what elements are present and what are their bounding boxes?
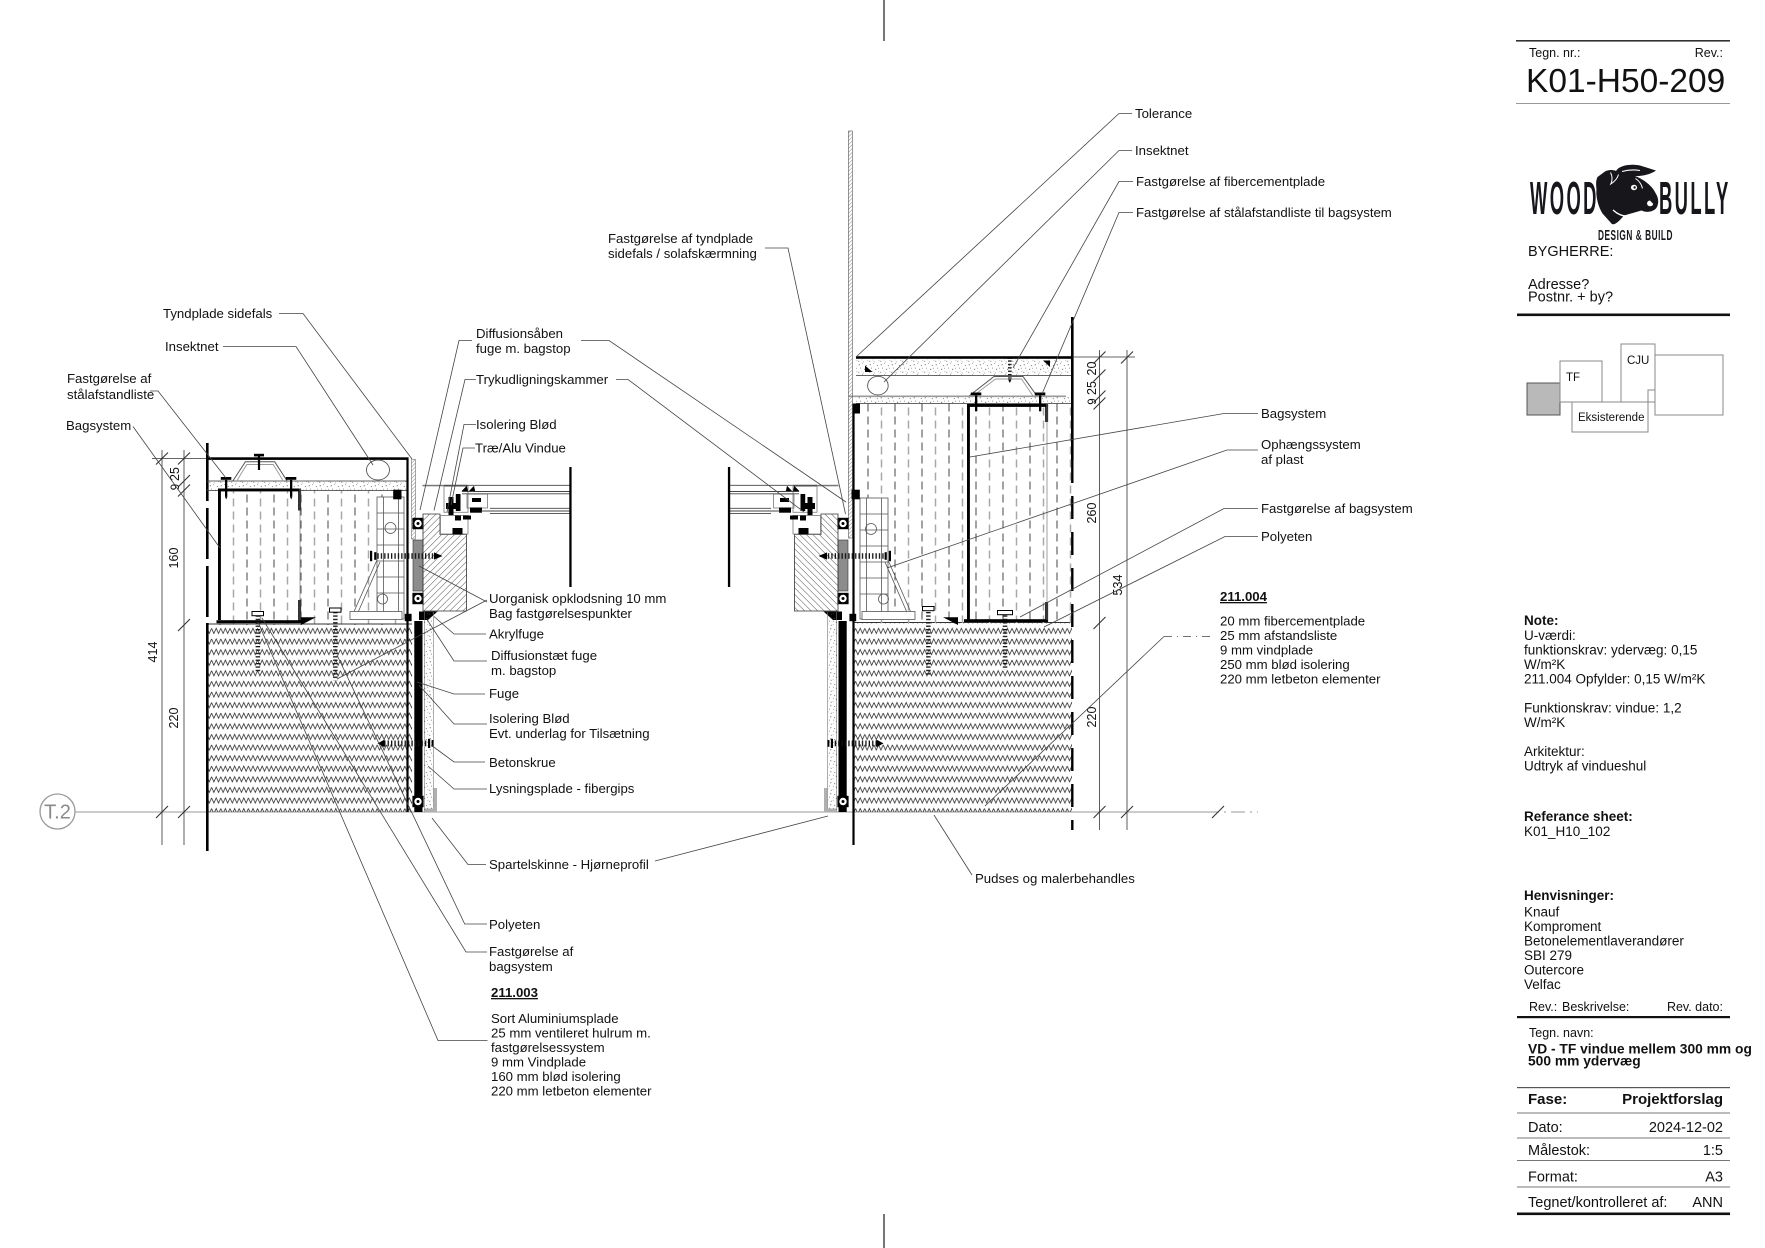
svg-text:Betonskrue: Betonskrue <box>489 755 556 770</box>
svg-text:Udtryk af vindueshul: Udtryk af vindueshul <box>1524 759 1646 774</box>
svg-text:Knauf: Knauf <box>1524 905 1560 920</box>
svg-text:160: 160 <box>167 548 181 569</box>
svg-text:25 mm afstandsliste: 25 mm afstandsliste <box>1220 628 1337 643</box>
svg-text:TF: TF <box>1566 372 1580 384</box>
svg-text:DESIGN & BUILD: DESIGN & BUILD <box>1598 226 1673 243</box>
svg-text:Komproment: Komproment <box>1524 919 1602 934</box>
svg-text:Fastgørelse af: Fastgørelse af <box>489 944 574 959</box>
svg-text:Lysningsplade - fibergips: Lysningsplade - fibergips <box>489 781 635 796</box>
svg-text:Tolerance: Tolerance <box>1135 106 1192 121</box>
svg-text:T.2: T.2 <box>44 802 71 824</box>
svg-text:160 mm blød isolering: 160 mm blød isolering <box>491 1069 621 1084</box>
svg-text:BULLY: BULLY <box>1659 173 1731 224</box>
svg-text:K01_H10_102: K01_H10_102 <box>1524 824 1610 839</box>
svg-text:BYGHERRE:: BYGHERRE: <box>1528 244 1613 260</box>
svg-text:Tegn. nr.:: Tegn. nr.: <box>1529 46 1580 60</box>
svg-text:Isolering Blød: Isolering Blød <box>489 711 570 726</box>
svg-text:CJU: CJU <box>1627 355 1649 367</box>
svg-text:Bag fastgørelsespunkter: Bag fastgørelsespunkter <box>489 606 633 621</box>
svg-text:25: 25 <box>1085 381 1099 395</box>
svg-text:Tyndplade sidefals: Tyndplade sidefals <box>163 306 273 321</box>
svg-text:Funktionskrav: vindue: 1,2: Funktionskrav: vindue: 1,2 <box>1524 701 1682 716</box>
svg-text:211.004 Opfylder: 0,15 W/m²K: 211.004 Opfylder: 0,15 W/m²K <box>1524 672 1705 687</box>
svg-text:Spartelskinne - Hjørneprofil: Spartelskinne - Hjørneprofil <box>489 857 649 872</box>
svg-text:Henvisninger:: Henvisninger: <box>1524 888 1614 903</box>
svg-text:Diffusionsåben: Diffusionsåben <box>476 326 563 341</box>
svg-text:Pudses og malerbehandles: Pudses og malerbehandles <box>975 871 1135 886</box>
svg-text:Rev. dato:: Rev. dato: <box>1667 1000 1723 1014</box>
svg-text:Fastgørelse af: Fastgørelse af <box>67 371 152 386</box>
svg-text:Isolering Blød: Isolering Blød <box>476 417 557 432</box>
svg-text:20: 20 <box>1085 362 1099 376</box>
svg-text:Projektforslag: Projektforslag <box>1622 1091 1723 1108</box>
svg-text:414: 414 <box>146 642 160 663</box>
svg-text:Eksisterende: Eksisterende <box>1578 412 1644 424</box>
svg-text:9: 9 <box>1087 398 1099 404</box>
svg-text:bagsystem: bagsystem <box>489 959 553 974</box>
svg-text:m. bagstop: m. bagstop <box>491 663 556 678</box>
svg-text:Trykudligningskammer: Trykudligningskammer <box>476 372 609 387</box>
svg-text:25 mm ventileret hulrum m.: 25 mm ventileret hulrum m. <box>491 1026 651 1041</box>
svg-text:K01-H50-209: K01-H50-209 <box>1526 63 1725 100</box>
svg-text:Evt. underlag for Tilsætning: Evt. underlag for Tilsætning <box>489 726 650 741</box>
svg-text:sidefals / solafskærmning: sidefals / solafskærmning <box>608 246 757 261</box>
svg-text:20 mm fibercementplade: 20 mm fibercementplade <box>1220 614 1365 629</box>
svg-text:WOOD: WOOD <box>1530 173 1599 224</box>
svg-text:Sort Aluminiumsplade: Sort Aluminiumsplade <box>491 1011 619 1026</box>
svg-text:W/m²K: W/m²K <box>1524 657 1565 672</box>
svg-text:Velfac: Velfac <box>1524 977 1561 992</box>
svg-text:220 mm letbeton elementer: 220 mm letbeton elementer <box>491 1084 652 1099</box>
svg-text:Tegnet/kontrolleret af:: Tegnet/kontrolleret af: <box>1528 1195 1667 1211</box>
svg-text:SBI 279: SBI 279 <box>1524 948 1572 963</box>
svg-text:ANN: ANN <box>1692 1195 1723 1211</box>
svg-text:211.003: 211.003 <box>491 985 538 1000</box>
svg-text:Betonelementlaverandører: Betonelementlaverandører <box>1524 934 1684 949</box>
svg-text:Målestok:: Målestok: <box>1528 1143 1590 1159</box>
svg-text:Referance sheet:: Referance sheet: <box>1524 809 1633 824</box>
svg-text:Fastgørelse af tyndplade: Fastgørelse af tyndplade <box>608 231 753 246</box>
svg-text:1:5: 1:5 <box>1703 1143 1723 1159</box>
svg-text:Format:: Format: <box>1528 1170 1578 1186</box>
svg-text:Fastgørelse af bagsystem: Fastgørelse af bagsystem <box>1261 501 1413 516</box>
svg-text:Outercore: Outercore <box>1524 963 1584 978</box>
svg-text:211.004: 211.004 <box>1220 589 1268 604</box>
svg-text:Arkitektur:: Arkitektur: <box>1524 744 1585 759</box>
svg-text:fastgørelsessystem: fastgørelsessystem <box>491 1040 605 1055</box>
svg-text:Insektnet: Insektnet <box>165 339 219 354</box>
svg-text:220: 220 <box>167 708 181 729</box>
svg-text:Akrylfuge: Akrylfuge <box>489 627 544 642</box>
svg-text:Fastgørelse af fibercementplad: Fastgørelse af fibercementplade <box>1136 174 1325 189</box>
svg-text:Træ/Alu Vindue: Træ/Alu Vindue <box>475 441 566 456</box>
svg-text:Ophængssystem: Ophængssystem <box>1261 437 1361 452</box>
svg-text:9 mm Vindplade: 9 mm Vindplade <box>491 1055 586 1070</box>
svg-text:U-værdi:: U-værdi: <box>1524 628 1576 643</box>
svg-text:Bagsystem: Bagsystem <box>1261 406 1326 421</box>
svg-text:Fase:: Fase: <box>1528 1091 1567 1108</box>
svg-text:Fastgørelse af stålafstandlist: Fastgørelse af stålafstandliste til bags… <box>1136 205 1392 220</box>
svg-text:funktionskrav: ydervæg: 0,15: funktionskrav: ydervæg: 0,15 <box>1524 643 1697 658</box>
svg-text:af plast: af plast <box>1261 452 1304 467</box>
svg-text:Diffusionstæt fuge: Diffusionstæt fuge <box>491 648 597 663</box>
svg-text:9 mm vindplade: 9 mm vindplade <box>1220 643 1313 658</box>
svg-text:Polyeten: Polyeten <box>489 917 540 932</box>
svg-text:A3: A3 <box>1705 1170 1723 1186</box>
svg-text:Fuge: Fuge <box>489 686 519 701</box>
svg-text:Rev.:: Rev.: <box>1529 1000 1557 1014</box>
svg-text:Postnr. + by?: Postnr. + by? <box>1528 290 1613 306</box>
svg-text:fuge m. bagstop: fuge m. bagstop <box>476 341 571 356</box>
svg-text:W/m²K: W/m²K <box>1524 715 1565 730</box>
svg-text:500 mm ydervæg: 500 mm ydervæg <box>1528 1054 1641 1069</box>
svg-text:stålafstandliste: stålafstandliste <box>67 387 154 402</box>
svg-text:Bagsystem: Bagsystem <box>66 418 131 433</box>
svg-text:Insektnet: Insektnet <box>1135 143 1189 158</box>
svg-text:260: 260 <box>1085 503 1099 524</box>
svg-text:Rev.:: Rev.: <box>1695 46 1723 60</box>
svg-text:Polyeten: Polyeten <box>1261 529 1312 544</box>
svg-text:Tegn. navn:: Tegn. navn: <box>1529 1026 1594 1040</box>
svg-text:Note:: Note: <box>1524 613 1559 628</box>
svg-text:Dato:: Dato: <box>1528 1120 1563 1136</box>
svg-text:250 mm blød isolering: 250 mm blød isolering <box>1220 657 1350 672</box>
svg-text:Uorganisk opklodsning 10 mm: Uorganisk opklodsning 10 mm <box>489 591 666 606</box>
svg-text:Beskrivelse:: Beskrivelse: <box>1562 1000 1629 1014</box>
svg-text:2024-12-02: 2024-12-02 <box>1649 1120 1723 1136</box>
svg-text:220 mm letbeton elementer: 220 mm letbeton elementer <box>1220 672 1381 687</box>
